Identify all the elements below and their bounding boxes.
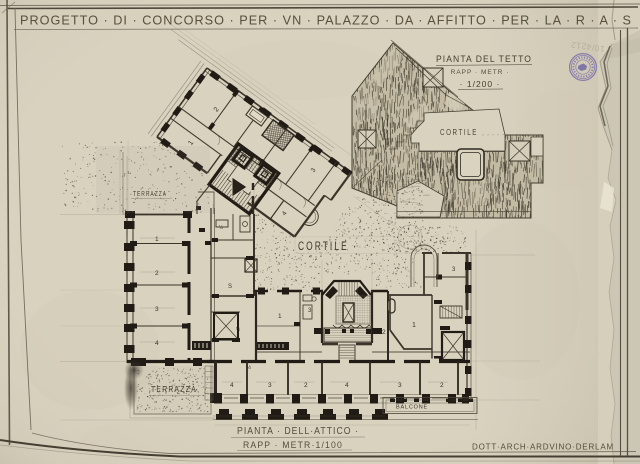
svg-text:RAPP · METR ·: RAPP · METR · [451,69,510,76]
svg-text:· 1/200 ·: · 1/200 · [460,79,501,89]
svg-text:BALCONE: BALCONE [396,405,428,411]
svg-text:PIANTA · DELL·ATTICO ·: PIANTA · DELL·ATTICO · [237,426,359,437]
svg-text:PROGETTO · DI · CONCORSO · PER: PROGETTO · DI · CONCORSO · PER · VN · PA… [20,14,632,28]
svg-text:CORTILE ·: CORTILE · [298,241,358,253]
svg-text:1: 1 [412,322,416,329]
svg-text:2: 2 [155,270,159,277]
svg-text:3: 3 [398,382,402,389]
svg-text:PIANTA DEL TETTO: PIANTA DEL TETTO [436,54,532,65]
svg-text:1: 1 [278,313,282,320]
svg-text:2: 2 [440,382,444,389]
svg-text:2: 2 [304,382,308,389]
svg-text:4: 4 [230,382,234,389]
svg-text:4: 4 [155,340,159,347]
svg-text:1: 1 [155,236,159,243]
svg-text:4: 4 [345,382,349,389]
svg-text:3: 3 [268,382,272,389]
svg-text:RAPP · METR·1/100: RAPP · METR·1/100 [243,440,343,450]
svg-text:CORTILE: CORTILE [440,128,478,137]
svg-text:S: S [228,284,232,290]
svg-text:3: 3 [155,306,159,313]
svg-text:2: 2 [382,329,386,336]
svg-text:DOTT·ARCH·ARDVINO·DERLAM: DOTT·ARCH·ARDVINO·DERLAM [472,443,614,452]
